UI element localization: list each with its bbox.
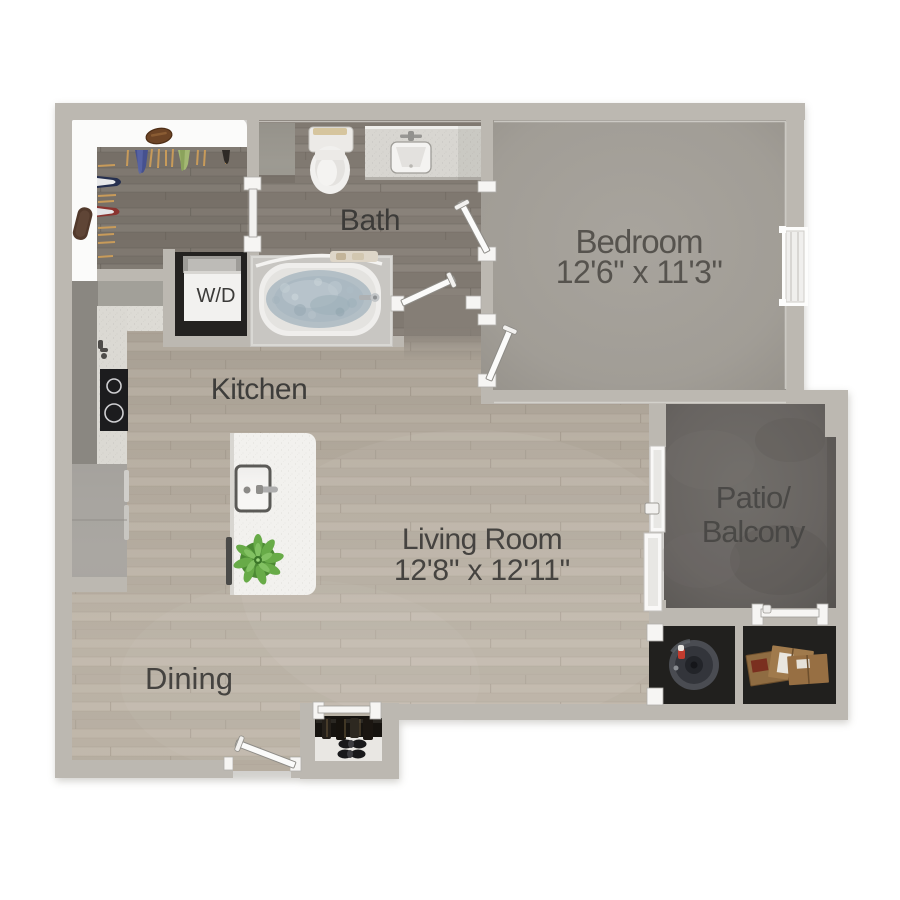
svg-text:Balcony: Balcony [702,514,806,549]
svg-text:Patio/: Patio/ [716,480,792,515]
svg-text:Kitchen: Kitchen [211,373,308,406]
svg-text:Bath: Bath [340,204,401,237]
svg-text:Dining: Dining [145,661,233,696]
svg-text:W/D: W/D [197,285,236,307]
svg-text:Living Room: Living Room [402,523,562,556]
svg-text:12'8" x 12'11": 12'8" x 12'11" [394,554,570,587]
svg-text:12'6" x 11'3": 12'6" x 11'3" [556,254,723,290]
